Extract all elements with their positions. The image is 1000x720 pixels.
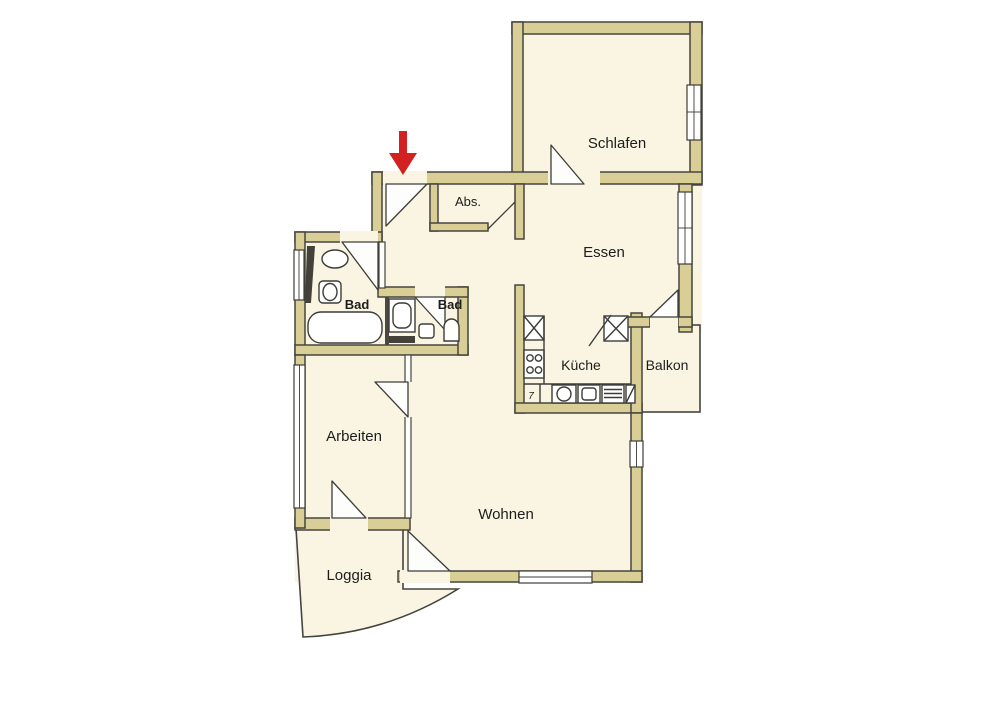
opening-balcony: [650, 316, 678, 328]
entrance-arrow-icon: [389, 131, 417, 175]
partition-bad1-hall: [379, 242, 385, 288]
wall-balcony-door-left: [626, 317, 650, 327]
arrow-shaft: [399, 131, 407, 155]
room-label-kueche: Küche: [561, 357, 601, 373]
room-label-bad2: Bad: [438, 297, 463, 312]
toilet-bowl-icon: [323, 284, 337, 301]
sink-unit-icon: [552, 385, 576, 403]
washbasin-icon: [322, 250, 348, 268]
toilet2-icon: [444, 319, 459, 341]
room-label-abs: Abs.: [455, 194, 481, 209]
wall-kitchen-bottom: [515, 403, 642, 413]
wall-schlafen-left: [512, 22, 523, 184]
room-label-bad1: Bad: [345, 297, 370, 312]
bathtub-icon: [308, 312, 382, 343]
room-label-arbeiten: Arbeiten: [326, 428, 382, 445]
partition-arbeiten-wohnen: [405, 355, 411, 518]
stove-icon: [524, 350, 544, 378]
shower-step-icon: [389, 336, 415, 343]
kitchen-mark: 7: [528, 391, 534, 402]
opening-entrance: [383, 171, 427, 185]
wall-bath-bottom: [295, 345, 468, 355]
wall-schlafen-top: [512, 22, 702, 34]
opening-wohnen-loggia: [400, 570, 450, 583]
wall-wohnen-right: [631, 413, 642, 582]
floor-plan-drawing: Schlafen Abs. Essen Bad Bad Küche Balkon…: [0, 0, 1000, 720]
wall-abs-bottom: [430, 223, 488, 231]
room-label-schlafen: Schlafen: [588, 135, 646, 152]
floor-plan-canvas: Schlafen Abs. Essen Bad Bad Küche Balkon…: [0, 0, 1000, 720]
small-sink-icon: [419, 324, 434, 338]
room-label-balkon: Balkon: [646, 357, 689, 373]
wall-balcony-door-right: [678, 317, 692, 327]
room-label-essen: Essen: [583, 244, 625, 261]
room-label-wohnen: Wohnen: [478, 506, 534, 523]
shower-tray-icon: [393, 303, 411, 328]
wall-kitchen-left: [515, 285, 524, 413]
wall-abs-right: [515, 184, 524, 239]
opening-arbeiten-loggia: [330, 517, 368, 531]
room-label-loggia: Loggia: [326, 567, 372, 584]
opening-bad1: [340, 231, 378, 243]
